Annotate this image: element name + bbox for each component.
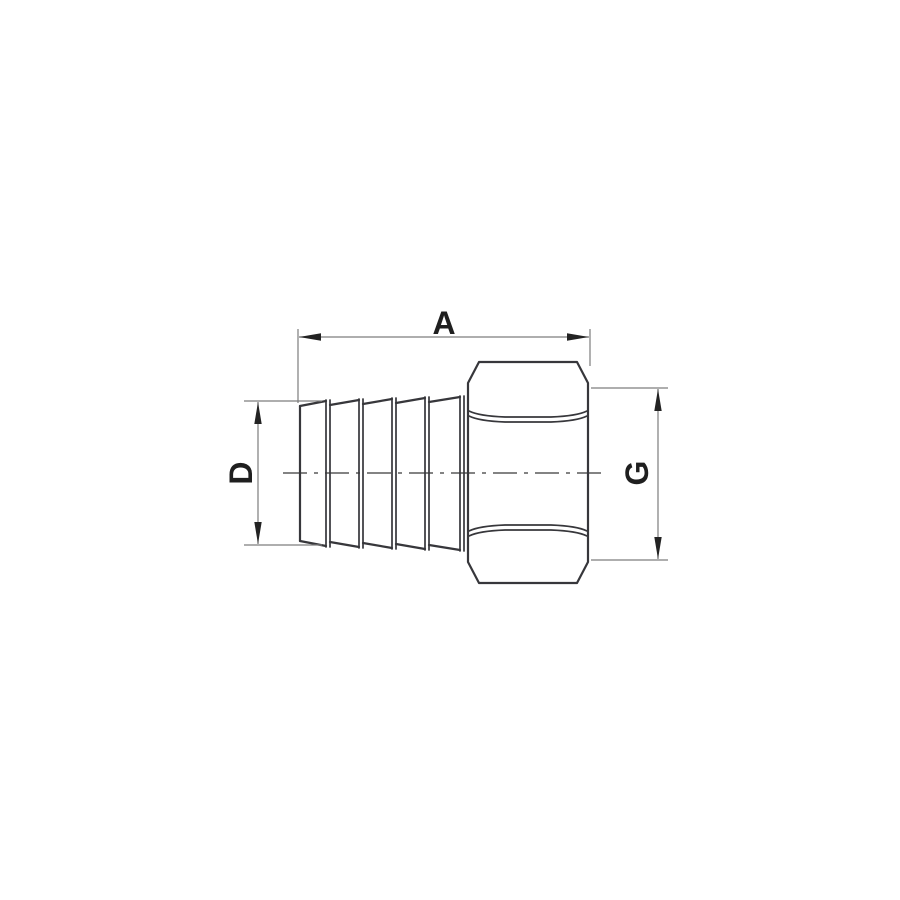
dimension-a-label: A	[432, 305, 455, 341]
technical-drawing-canvas: A D G	[0, 0, 900, 900]
dimension-g-label: G	[619, 461, 655, 486]
dimension-d-label: D	[223, 461, 259, 484]
page-background: A D G	[0, 0, 900, 900]
drawing-background	[0, 0, 900, 900]
